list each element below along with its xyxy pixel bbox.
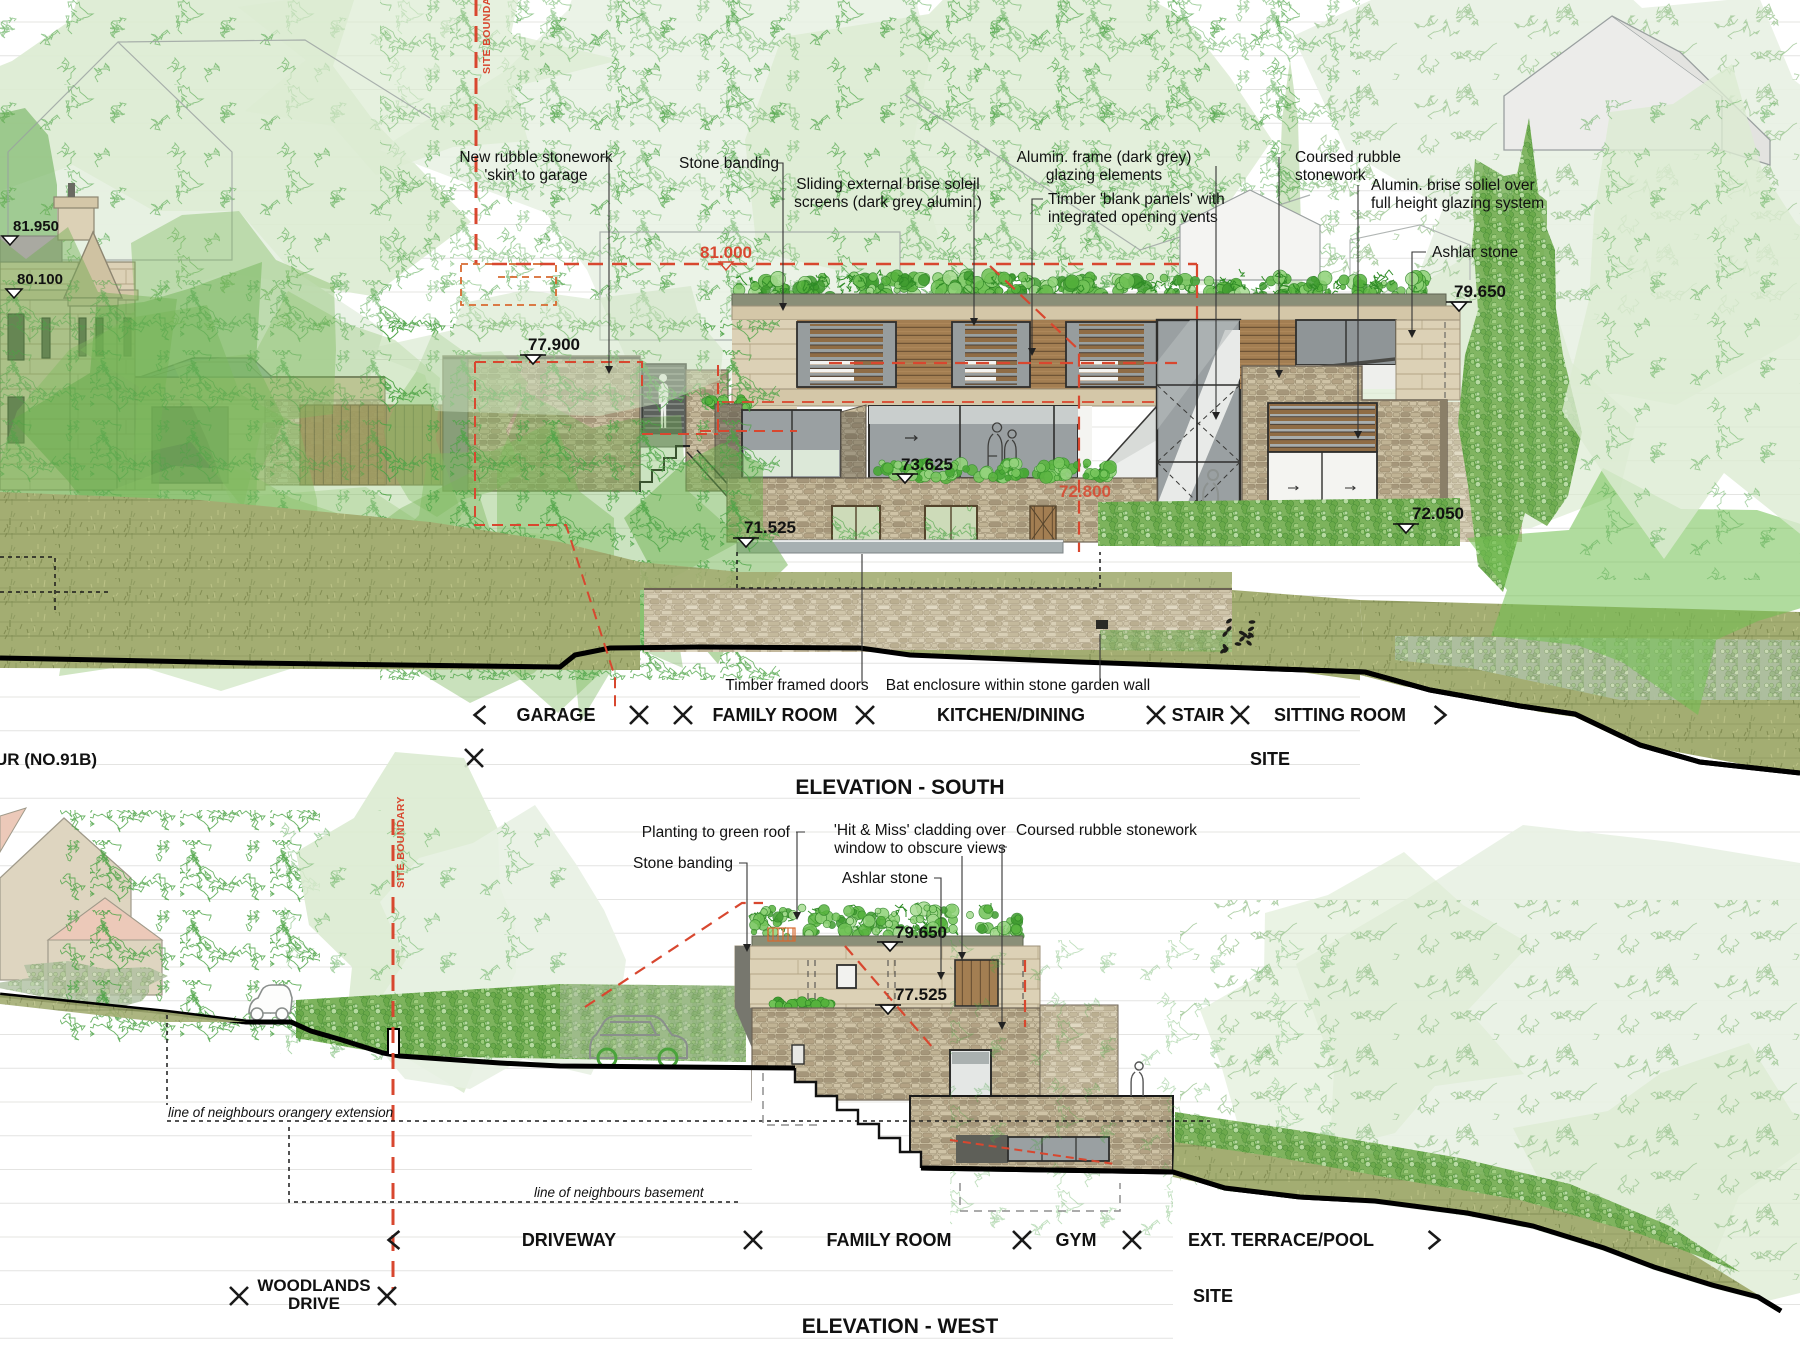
svg-text:FAMILY ROOM: FAMILY ROOM (712, 705, 837, 725)
svg-text:screens (dark grey alumin.): screens (dark grey alumin.) (794, 194, 982, 211)
svg-text:integrated opening vents: integrated opening vents (1048, 209, 1218, 226)
svg-text:Planting to green roof: Planting to green roof (642, 824, 791, 841)
svg-text:Sliding external brise soleil: Sliding external brise soleil (796, 176, 980, 193)
svg-text:SITE: SITE (1250, 749, 1290, 769)
svg-text:SITE BOUNDARY: SITE BOUNDARY (481, 0, 493, 74)
svg-text:line of neighbours orangery ex: line of neighbours orangery extension (168, 1105, 393, 1120)
svg-text:KITCHEN/DINING: KITCHEN/DINING (937, 705, 1085, 725)
svg-text:full height glazing system: full height glazing system (1371, 195, 1544, 212)
svg-text:Alumin. brise soliel over: Alumin. brise soliel over (1371, 177, 1535, 194)
svg-text:Ashlar stone: Ashlar stone (1432, 244, 1518, 261)
svg-text:72.050: 72.050 (1412, 504, 1464, 523)
svg-text:SITE: SITE (1193, 1286, 1233, 1306)
svg-text:Ashlar stone: Ashlar stone (842, 870, 928, 887)
svg-text:79.650: 79.650 (895, 923, 947, 942)
svg-text:Timber framed doors: Timber framed doors (725, 677, 869, 694)
svg-text:80.100: 80.100 (17, 271, 63, 288)
svg-text:79.650: 79.650 (1454, 282, 1506, 301)
svg-text:ELEVATION - WEST: ELEVATION - WEST (802, 1315, 999, 1338)
svg-text:window to obscure views: window to obscure views (833, 840, 1006, 857)
svg-text:stonework: stonework (1295, 167, 1366, 184)
svg-text:SITE BOUNDARY: SITE BOUNDARY (395, 796, 407, 888)
svg-text:GARAGE: GARAGE (516, 705, 595, 725)
svg-text:Coursed rubble: Coursed rubble (1295, 149, 1401, 166)
svg-text:Coursed rubble stonework: Coursed rubble stonework (1016, 822, 1197, 839)
svg-text:UR (NO.91B): UR (NO.91B) (0, 750, 97, 769)
svg-text:ELEVATION - SOUTH: ELEVATION - SOUTH (795, 776, 1004, 799)
svg-text:GYM: GYM (1055, 1230, 1096, 1250)
svg-text:DRIVEWAY: DRIVEWAY (522, 1230, 616, 1250)
svg-text:Stone banding: Stone banding (679, 155, 779, 172)
svg-text:Bat enclosure within stone gar: Bat enclosure within stone garden wall (886, 677, 1151, 694)
svg-text:Stone banding: Stone banding (633, 855, 733, 872)
svg-text:73.625: 73.625 (901, 455, 953, 474)
svg-text:81.950: 81.950 (13, 218, 59, 235)
svg-text:New rubble stonework: New rubble stonework (459, 149, 613, 166)
svg-text:line of neighbours basement: line of neighbours basement (534, 1185, 705, 1200)
svg-text:STAIR: STAIR (1172, 705, 1225, 725)
svg-text:'Hit & Miss' cladding over: 'Hit & Miss' cladding over (834, 822, 1006, 839)
svg-text:71.525: 71.525 (744, 518, 796, 537)
svg-text:glazing elements: glazing elements (1046, 167, 1163, 184)
svg-text:Timber 'blank panels' with: Timber 'blank panels' with (1048, 191, 1225, 208)
svg-text:FAMILY ROOM: FAMILY ROOM (826, 1230, 951, 1250)
svg-text:72.800: 72.800 (1059, 482, 1111, 501)
svg-text:Alumin. frame (dark grey): Alumin. frame (dark grey) (1017, 149, 1192, 166)
svg-text:77.525: 77.525 (895, 985, 947, 1004)
svg-text:77.900: 77.900 (528, 335, 580, 354)
svg-text:'skin' to garage: 'skin' to garage (484, 167, 587, 184)
svg-text:DRIVE: DRIVE (288, 1294, 340, 1313)
svg-text:WOODLANDS: WOODLANDS (257, 1276, 370, 1295)
svg-text:SITTING ROOM: SITTING ROOM (1274, 705, 1406, 725)
svg-text:EXT. TERRACE/POOL: EXT. TERRACE/POOL (1188, 1230, 1374, 1250)
svg-text:81.000: 81.000 (700, 243, 752, 262)
